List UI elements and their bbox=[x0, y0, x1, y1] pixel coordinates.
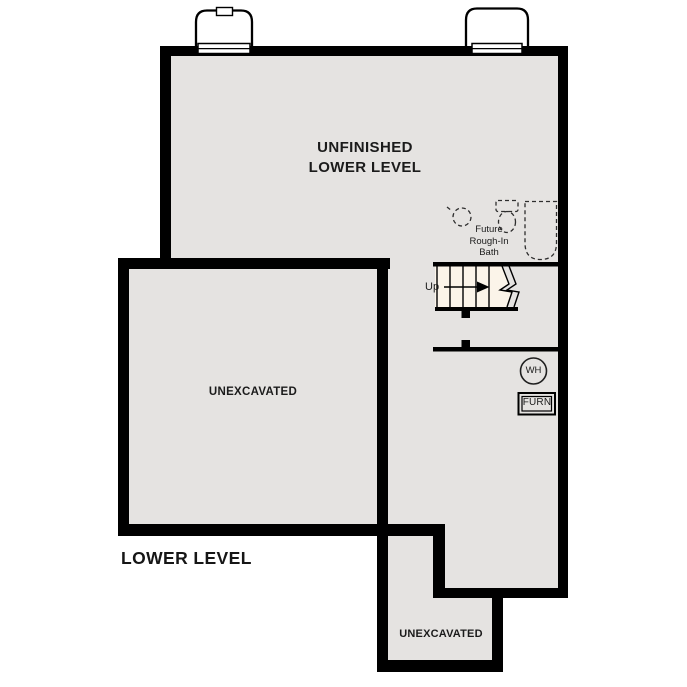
floor-plan: UNFINISHED LOWER LEVEL UNEXCAVATED Futur… bbox=[0, 0, 687, 687]
drain-tick-icon bbox=[447, 207, 452, 211]
stairs bbox=[433, 262, 559, 352]
bottom-unexcavated-label: UNEXCAVATED bbox=[391, 628, 491, 640]
furnace-label: FURN bbox=[518, 397, 556, 408]
main-room-label: UNFINISHED LOWER LEVEL bbox=[265, 138, 465, 178]
water-heater-label: WH bbox=[520, 365, 547, 376]
page-title: LOWER LEVEL bbox=[121, 548, 252, 569]
bathtub-icon bbox=[525, 202, 557, 260]
bath-rough-in-label: Future Rough-In Bath bbox=[455, 224, 523, 259]
window-well-icon bbox=[196, 8, 252, 54]
left-unexcavated-label: UNEXCAVATED bbox=[180, 386, 326, 398]
stairs-up-label: Up bbox=[425, 281, 439, 293]
window-well-icon bbox=[466, 9, 528, 54]
plan-detail-layer bbox=[0, 0, 687, 687]
